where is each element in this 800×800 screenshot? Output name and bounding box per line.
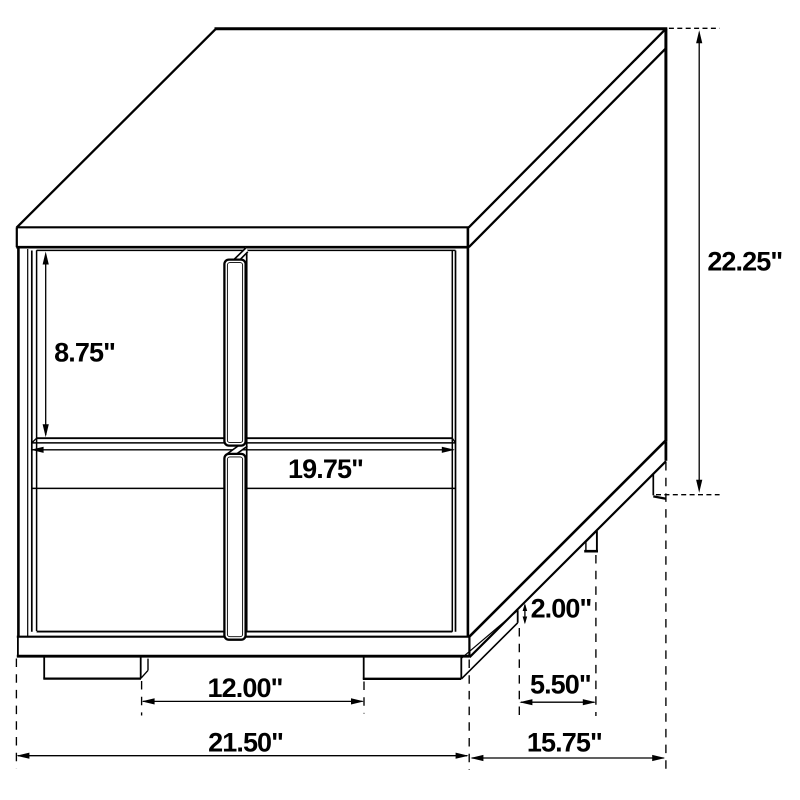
svg-text:21.50": 21.50"	[208, 727, 283, 757]
svg-text:2.00": 2.00"	[531, 593, 592, 623]
svg-text:22.25": 22.25"	[707, 247, 782, 277]
svg-text:15.75": 15.75"	[527, 727, 602, 757]
svg-text:8.75": 8.75"	[54, 338, 115, 368]
svg-text:5.50": 5.50"	[530, 670, 591, 700]
svg-text:12.00": 12.00"	[208, 673, 283, 703]
svg-text:19.75": 19.75"	[288, 454, 363, 484]
